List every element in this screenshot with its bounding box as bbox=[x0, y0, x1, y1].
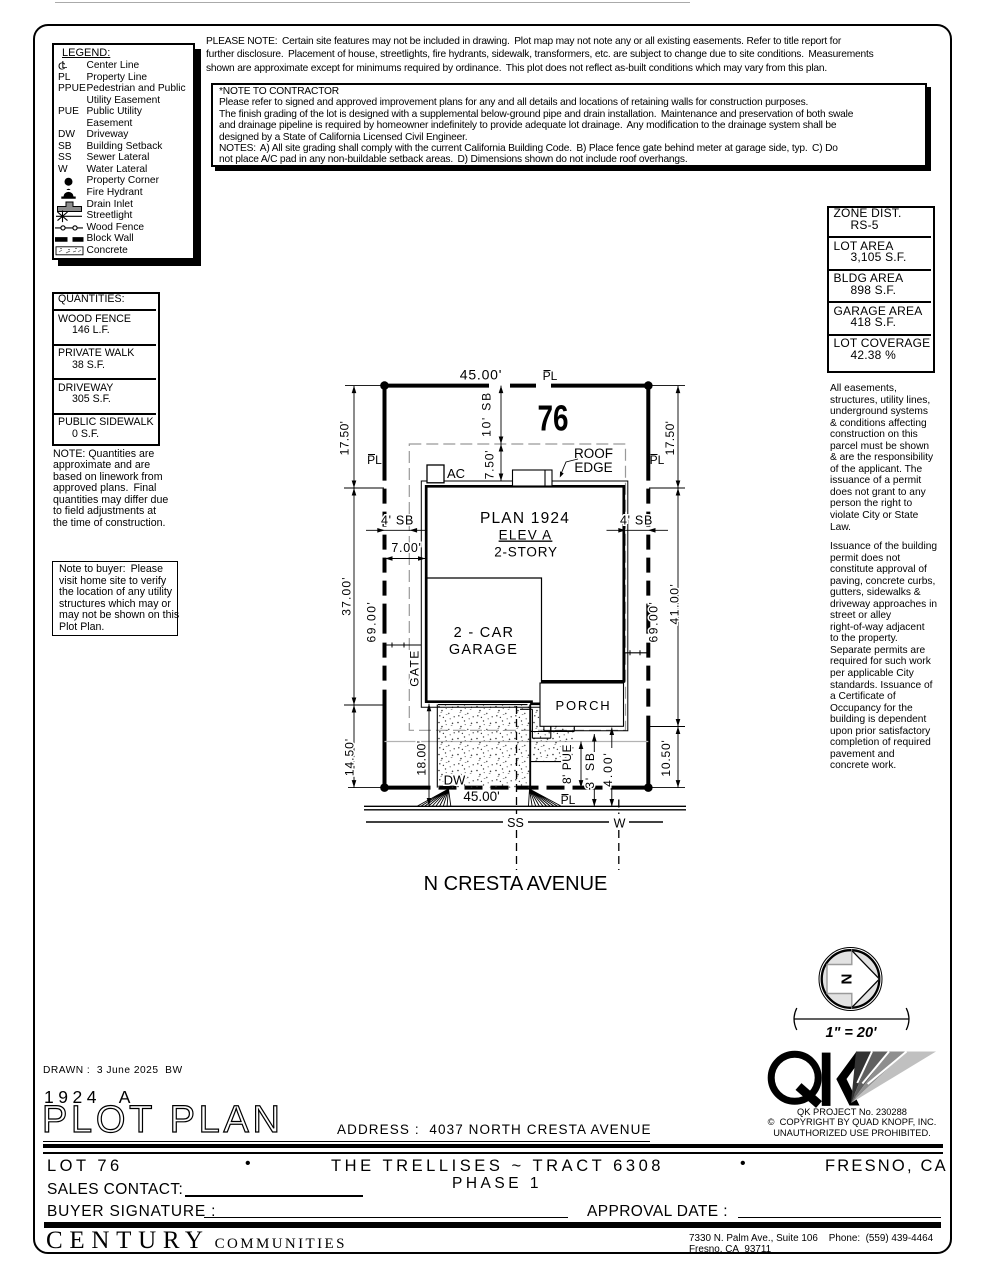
svg-text:37.00': 37.00' bbox=[340, 576, 354, 616]
svg-text:3' SB: 3' SB bbox=[583, 751, 597, 788]
svg-text:2-STORY: 2-STORY bbox=[494, 545, 558, 560]
svg-text:PLAN 1924: PLAN 1924 bbox=[480, 510, 570, 527]
svg-text:DW: DW bbox=[444, 773, 466, 788]
svg-text:GARAGE: GARAGE bbox=[449, 642, 518, 658]
svg-text:PL: PL bbox=[561, 793, 576, 807]
svg-text:69.00': 69.00' bbox=[647, 601, 661, 643]
svg-text:N: N bbox=[838, 974, 855, 985]
svg-text:69.00': 69.00' bbox=[365, 601, 379, 643]
svg-text:41.00': 41.00' bbox=[668, 583, 682, 625]
svg-text:17.50': 17.50' bbox=[663, 421, 677, 456]
svg-text:10.50': 10.50' bbox=[659, 739, 673, 776]
svg-text:ELEV A: ELEV A bbox=[499, 528, 553, 543]
svg-text:17.50': 17.50' bbox=[338, 421, 352, 456]
svg-text:1" = 20': 1" = 20' bbox=[825, 1025, 877, 1041]
svg-text:PL: PL bbox=[543, 369, 558, 383]
svg-text:45.00': 45.00' bbox=[460, 367, 503, 383]
svg-text:45.00': 45.00' bbox=[463, 789, 499, 804]
svg-text:SS: SS bbox=[507, 816, 524, 830]
svg-text:4.00': 4.00' bbox=[601, 751, 615, 787]
svg-text:7.50': 7.50' bbox=[483, 450, 497, 480]
svg-text:W: W bbox=[614, 817, 626, 831]
svg-text:14.50': 14.50' bbox=[343, 738, 357, 776]
svg-text:4' SB: 4' SB bbox=[381, 514, 414, 528]
svg-text:4' SB: 4' SB bbox=[620, 514, 653, 528]
svg-text:76: 76 bbox=[538, 398, 569, 439]
svg-text:7.00': 7.00' bbox=[391, 541, 421, 555]
svg-text:10' SB: 10' SB bbox=[480, 391, 494, 437]
svg-text:GATE: GATE bbox=[408, 649, 422, 686]
svg-text:ROOF: ROOF bbox=[574, 446, 613, 461]
svg-text:18.00': 18.00' bbox=[415, 740, 429, 775]
svg-text:EDGE: EDGE bbox=[574, 460, 612, 475]
svg-text:AC: AC bbox=[447, 466, 465, 481]
svg-text:PL: PL bbox=[367, 453, 382, 467]
svg-text:8' PUE: 8' PUE bbox=[560, 744, 574, 784]
svg-text:N CRESTA AVENUE: N CRESTA AVENUE bbox=[424, 873, 608, 895]
svg-text:PORCH: PORCH bbox=[556, 698, 612, 713]
svg-text:2 - CAR: 2 - CAR bbox=[454, 625, 515, 641]
